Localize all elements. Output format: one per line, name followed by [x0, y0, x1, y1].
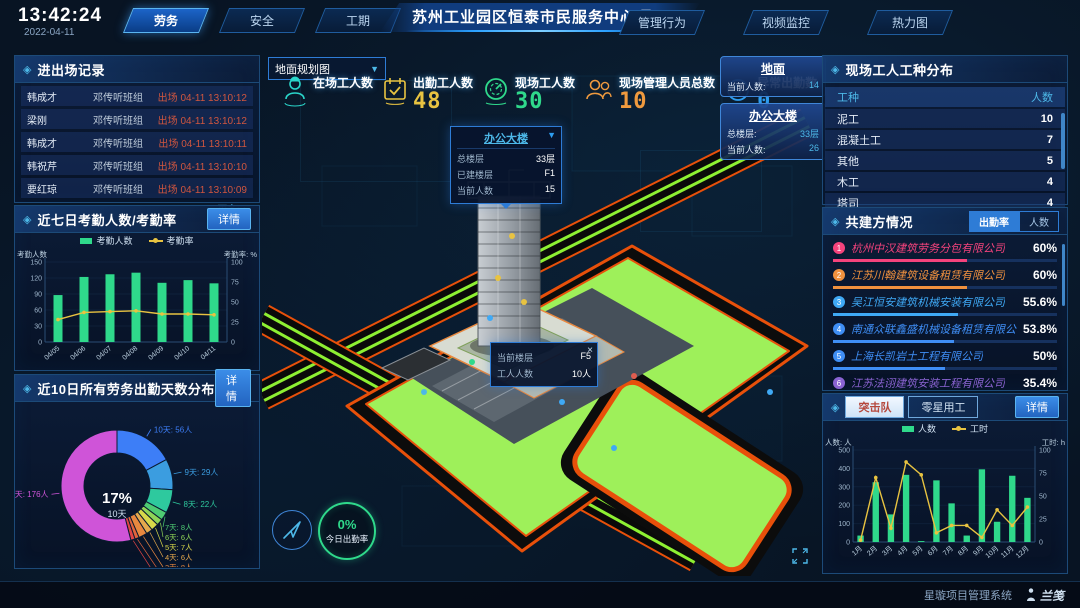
panel-header: ◈ 现场工人工种分布	[823, 56, 1067, 83]
svg-text:0: 0	[846, 540, 850, 547]
team-name: 邓传听班组	[93, 89, 158, 104]
entry-exit-list: 韩成才邓传听班组出场 04-11 13:10:12梁刚邓传听班组出场 04-11…	[15, 86, 259, 198]
fullscreen-icon[interactable]	[792, 548, 808, 564]
map-area: 地面规划图 ▼ 在场工人数出勤工人数48现场工人数30现场管理人员总数10异常出…	[262, 46, 818, 576]
view-tab-视频监控[interactable]: 视频监控	[743, 10, 829, 35]
event-time: 出场 04-11 13:10:10	[158, 158, 247, 173]
svg-text:50: 50	[1039, 494, 1047, 501]
panel-title: 近10日所有劳务出勤天数分布	[37, 379, 214, 398]
side-card-办公大楼[interactable]: 办公大楼总楼层:33层当前人数:26	[720, 103, 826, 160]
side-card-row: 总楼层:33层	[727, 127, 819, 140]
squad-tabs: 突击队零星用工	[845, 396, 978, 418]
legend-item-工时: 工时	[952, 422, 988, 435]
scrollbar[interactable]	[1061, 113, 1065, 169]
svg-text:04/09: 04/09	[147, 345, 165, 362]
partner-bar	[833, 313, 1057, 316]
svg-text:120: 120	[30, 276, 42, 283]
panel-header: ◈ 进出场记录	[15, 56, 259, 83]
event-time: 出场 04-11 13:10:12	[158, 112, 247, 127]
tab-label: 热力图	[892, 14, 928, 31]
worker-type-row: 其他5	[825, 151, 1065, 170]
time: 13:42:24	[18, 5, 102, 26]
legend-label: 工时	[970, 422, 988, 435]
panel-title: 进出场记录	[37, 60, 105, 79]
svg-text:7月: 7月	[941, 544, 954, 557]
team-name: 邓传听班组	[93, 112, 158, 127]
worker-type-row: 泥工10	[825, 109, 1065, 128]
rank-badge: 4	[833, 323, 845, 335]
svg-text:5天: 7人: 5天: 7人	[165, 543, 193, 552]
stat-value: 10	[619, 91, 715, 113]
chevron-down-icon[interactable]: ▼	[547, 130, 556, 140]
partner-item[interactable]: 3吴江恒安建筑机械安装有限公司55.6%	[833, 294, 1057, 316]
team-name: 邓传听班组	[93, 135, 158, 150]
svg-text:9天: 29人: 9天: 29人	[185, 468, 219, 477]
partner-value: 50%	[1033, 349, 1057, 363]
view-tab-热力图[interactable]: 热力图	[867, 10, 953, 35]
partner-item[interactable]: 1杭州中汉建筑劳务分包有限公司60%	[833, 240, 1057, 262]
worker-name: 梁刚	[27, 112, 93, 127]
panel-header: ◈ 近七日考勤人数/考勤率 详情	[15, 206, 259, 233]
module-tabs: 劳务安全工期	[128, 8, 396, 33]
partner-item[interactable]: 4南通众联鑫盛机械设备租赁有限公司53.8%	[833, 321, 1057, 343]
svg-text:75: 75	[231, 280, 239, 287]
panel-entry-exit: ◈ 进出场记录 韩成才邓传听班组出场 04-11 13:10:12梁刚邓传听班组…	[14, 55, 260, 203]
squad-tab-突击队[interactable]: 突击队	[845, 396, 904, 418]
type-name: 木工	[837, 174, 859, 190]
popup-row: 总楼层33层	[457, 152, 555, 165]
logo-person-icon	[1026, 588, 1036, 602]
tab-label: 管理行为	[638, 14, 686, 31]
building-popup-rows: 总楼层33层已建楼层F1当前人数15	[457, 152, 555, 197]
entry-exit-row: 韩成才邓传听班组出场 04-11 13:10:11	[21, 132, 253, 152]
chart-legend: 人数工时	[823, 421, 1067, 436]
partner-name: 江苏法诩建筑安装工程有限公司	[851, 375, 1005, 391]
partner-bar	[833, 286, 1057, 289]
popup-row: 工人人数10人	[497, 367, 591, 380]
worker-type-row: 混凝土工7	[825, 130, 1065, 149]
detail-button[interactable]: 详情	[1015, 396, 1059, 418]
svg-text:5月: 5月	[911, 544, 924, 557]
brand-logo: 兰笺	[1026, 587, 1064, 604]
svg-text:6月: 6月	[926, 544, 939, 557]
svg-text:0: 0	[231, 340, 235, 347]
date: 2022-04-11	[24, 27, 102, 38]
panel-partners: ◈ 共建方情况 出勤率人数 1杭州中汉建筑劳务分包有限公司60%2江苏川翰建筑设…	[822, 207, 1068, 391]
diamond-icon: ◈	[831, 63, 839, 76]
calendar-check-icon	[382, 76, 408, 111]
svg-text:11月: 11月	[999, 544, 1015, 559]
legend-label: 考勤人数	[96, 234, 132, 247]
entry-exit-row: 韩成才邓传听班组出场 04-11 13:10:12	[21, 86, 253, 106]
svg-text:200: 200	[838, 503, 850, 510]
panel-header: ◈ 近10日所有劳务出勤天数分布 详情	[15, 375, 259, 402]
rank-badge: 5	[833, 350, 845, 362]
panel-title: 现场工人工种分布	[845, 60, 953, 79]
rank-badge: 1	[833, 242, 845, 254]
rank-badge: 2	[833, 269, 845, 281]
popup-row: 当前人数15	[457, 184, 555, 197]
panel-header: ◈ 共建方情况 出勤率人数	[823, 208, 1067, 235]
stat-people: 现场管理人员总数10	[584, 74, 715, 113]
diamond-icon: ◈	[23, 63, 31, 76]
stat-gauge: 现场工人数30	[482, 74, 575, 113]
people-icon	[584, 77, 614, 110]
partner-value: 60%	[1033, 241, 1057, 255]
partner-tab-人数[interactable]: 人数	[1019, 211, 1059, 232]
attendance-gauge: 0% 今日出勤率	[318, 502, 376, 560]
svg-text:04/07: 04/07	[95, 345, 113, 362]
building-popup-title[interactable]: 办公大楼 ▼	[457, 130, 555, 149]
svg-text:2月: 2月	[866, 544, 879, 557]
side-card-title[interactable]: 办公大楼	[727, 107, 819, 124]
attendance-chart: 考勤人数考勤率: %0306090120150025507510004/0504…	[15, 248, 259, 368]
scrollbar[interactable]	[1062, 244, 1065, 306]
diamond-icon: ◈	[23, 213, 31, 226]
svg-text:0: 0	[1039, 540, 1043, 547]
building-popup: 办公大楼 ▼ 总楼层33层已建楼层F1当前人数15	[450, 126, 562, 204]
partner-value: 60%	[1033, 268, 1057, 282]
entry-exit-row: 韩祝芹邓传听班组出场 04-11 13:10:10	[21, 155, 253, 175]
type-count: 10	[1041, 113, 1053, 125]
svg-text:4月: 4月	[896, 544, 909, 557]
worker-name: 韩成才	[27, 135, 93, 150]
popup-row: 已建楼层F1	[457, 168, 555, 181]
svg-text:10月: 10月	[984, 544, 1000, 560]
tab-label: 视频监控	[762, 14, 810, 31]
svg-text:0天: 176人: 0天: 176人	[15, 490, 49, 499]
partner-value: 55.6%	[1023, 295, 1057, 309]
module-tab-安全[interactable]: 安全	[219, 8, 305, 33]
footer: 星璇项目管理系统 兰笺	[0, 581, 1080, 608]
panel-distribution10: ◈ 近10日所有劳务出勤天数分布 详情 10天: 56人9天: 29人8天: 2…	[14, 374, 260, 569]
svg-text:3天: 8人: 3天: 8人	[165, 563, 193, 567]
gauge-icon	[482, 76, 510, 111]
gauge-label: 今日出勤率	[326, 533, 369, 545]
partner-tab-出勤率[interactable]: 出勤率	[969, 211, 1019, 232]
partner-item[interactable]: 5上海长凯岩土工程有限公司50%	[833, 348, 1057, 370]
team-name: 邓传听班组	[93, 181, 158, 196]
type-count: 4	[1047, 176, 1053, 188]
svg-text:04/11: 04/11	[200, 345, 218, 361]
svg-text:04/08: 04/08	[121, 345, 139, 362]
diamond-icon: ◈	[831, 401, 839, 414]
partner-name: 上海长凯岩土工程有限公司	[851, 348, 983, 364]
event-time: 出场 04-11 13:10:11	[158, 135, 247, 150]
event-time: 出场 04-11 13:10:09	[158, 181, 247, 196]
panel-title: 近七日考勤人数/考勤率	[37, 210, 176, 229]
svg-text:10天: 56人: 10天: 56人	[154, 425, 192, 434]
stat-calendar-check: 出勤工人数48	[382, 74, 473, 113]
legend-item-人数: 人数	[902, 422, 936, 435]
partner-item[interactable]: 2江苏川翰建筑设备租赁有限公司60%	[833, 267, 1057, 289]
partner-name: 吴江恒安建筑机械安装有限公司	[851, 294, 1005, 310]
tab-label: 工期	[346, 12, 370, 29]
svg-text:75: 75	[1039, 471, 1047, 478]
chart-legend: 考勤人数考勤率	[15, 233, 259, 248]
panel-squad: ◈ 突击队零星用工 详情 人数工时 人数: 人工时: h010020030040…	[822, 393, 1068, 574]
partner-name: 南通众联鑫盛机械设备租赁有限公司	[851, 321, 1017, 337]
floor-popup-rows: 当前楼层F5工人人数10人	[497, 351, 591, 380]
type-count: 7	[1047, 134, 1053, 146]
table-header: 工种 人数	[825, 87, 1065, 107]
type-name: 其他	[837, 153, 859, 169]
event-time: 出场 04-11 13:10:12	[158, 89, 247, 104]
detail-button[interactable]: 详情	[207, 208, 251, 230]
diamond-icon: ◈	[831, 215, 839, 228]
entry-exit-row: 梁刚邓传听班组出场 04-11 13:10:12	[21, 109, 253, 129]
entry-exit-row: 要红琼邓传听班组出场 04-11 13:10:09	[21, 178, 253, 198]
svg-text:100: 100	[838, 521, 850, 528]
svg-text:04/05: 04/05	[43, 345, 61, 362]
partner-bar	[833, 259, 1057, 262]
worker-icon	[282, 75, 308, 112]
legend-item-考勤率: 考勤率	[149, 234, 194, 247]
svg-text:1月: 1月	[850, 544, 863, 557]
diamond-icon: ◈	[23, 382, 31, 395]
dashboard: 13:42:24 2022-04-11 劳务安全工期 苏州工业园区恒泰市民服务中…	[0, 0, 1080, 608]
svg-text:0: 0	[38, 340, 42, 347]
svg-text:04/10: 04/10	[173, 345, 191, 362]
legend-swatch	[80, 238, 92, 244]
svg-text:8月: 8月	[957, 544, 970, 557]
svg-text:25: 25	[1039, 517, 1047, 524]
close-icon[interactable]: ×	[587, 345, 593, 356]
svg-text:4天: 6人: 4天: 6人	[165, 553, 193, 562]
stat-value: 30	[515, 91, 575, 113]
compass-icon[interactable]	[272, 510, 312, 550]
svg-text:150: 150	[30, 260, 42, 267]
svg-text:300: 300	[838, 484, 850, 491]
svg-text:500: 500	[838, 448, 850, 455]
type-name: 泥工	[837, 111, 859, 127]
panel-worker-types: ◈ 现场工人工种分布 工种 人数 泥工10混凝土工7其他5木工4塔司4	[822, 55, 1068, 205]
partner-value: 35.4%	[1023, 376, 1057, 390]
module-tab-劳务[interactable]: 劳务	[123, 8, 209, 33]
system-name: 星璇项目管理系统	[924, 587, 1012, 603]
partner-bar	[833, 340, 1057, 343]
worker-types-table: 泥工10混凝土工7其他5木工4塔司4	[823, 109, 1067, 212]
view-tab-管理行为[interactable]: 管理行为	[619, 10, 705, 35]
popup-row: 当前楼层F5	[497, 351, 591, 364]
side-card-地面[interactable]: 地面当前人数:14	[720, 56, 826, 97]
rank-badge: 6	[833, 377, 845, 389]
svg-text:100: 100	[231, 260, 243, 267]
svg-text:考勤率: %: 考勤率: %	[224, 249, 258, 259]
partner-bar	[833, 367, 1057, 370]
svg-text:工时: h: 工时: h	[1042, 437, 1065, 447]
partner-name: 杭州中汉建筑劳务分包有限公司	[851, 240, 1005, 256]
side-card-title[interactable]: 地面	[727, 60, 819, 77]
svg-text:90: 90	[34, 292, 42, 299]
rank-badge: 3	[833, 296, 845, 308]
type-name: 混凝土工	[837, 132, 881, 148]
svg-text:6天: 6人: 6天: 6人	[165, 533, 193, 542]
legend-label: 考勤率	[167, 234, 194, 247]
squad-tab-零星用工[interactable]: 零星用工	[908, 396, 978, 418]
svg-text:60: 60	[34, 308, 42, 315]
panel-title: 共建方情况	[845, 212, 913, 231]
gauge-value: 0%	[338, 517, 357, 532]
svg-text:考勤人数: 考勤人数	[17, 249, 47, 259]
tab-label: 劳务	[154, 12, 178, 29]
svg-text:400: 400	[838, 466, 850, 473]
stat-worker: 在场工人数	[282, 74, 373, 113]
legend-swatch	[902, 426, 914, 432]
partner-value: 53.8%	[1023, 322, 1057, 336]
svg-text:9月: 9月	[972, 544, 985, 557]
side-card-row: 当前人数:14	[727, 80, 819, 93]
view-tabs: 管理行为视频监控热力图	[624, 10, 948, 35]
svg-text:8天: 22人: 8天: 22人	[183, 500, 217, 509]
svg-text:人数: 人: 人数: 人	[825, 437, 852, 447]
tab-label: 安全	[250, 12, 274, 29]
legend-label: 人数	[918, 422, 936, 435]
svg-text:50: 50	[231, 300, 239, 307]
panel-header: ◈ 突击队零星用工 详情	[823, 394, 1067, 421]
worker-name: 韩成才	[27, 89, 93, 104]
type-count: 5	[1047, 155, 1053, 167]
team-name: 邓传听班组	[93, 158, 158, 173]
partner-name: 江苏川翰建筑设备租赁有限公司	[851, 267, 1005, 283]
svg-text:12月: 12月	[1014, 544, 1030, 560]
legend-item-考勤人数: 考勤人数	[80, 234, 132, 247]
stat-label: 在场工人数	[313, 74, 373, 91]
svg-text:3月: 3月	[881, 544, 894, 557]
svg-text:30: 30	[34, 324, 42, 331]
floor-popup: × 当前楼层F5工人人数10人	[490, 342, 598, 387]
clock: 13:42:24 2022-04-11	[18, 6, 102, 38]
partner-item[interactable]: 6江苏法诩建筑安装工程有限公司35.4%	[833, 375, 1057, 391]
donut-chart: 10天: 56人9天: 29人8天: 22人7天: 8人6天: 6人5天: 7人…	[15, 402, 259, 567]
worker-type-row: 木工4	[825, 172, 1065, 191]
legend-swatch	[149, 238, 163, 243]
svg-text:25: 25	[231, 320, 239, 327]
partner-tabs: 出勤率人数	[969, 211, 1059, 232]
chevron-down-icon: ▼	[370, 64, 379, 74]
legend-swatch	[952, 426, 966, 431]
svg-text:04/06: 04/06	[69, 345, 87, 362]
worker-name: 韩祝芹	[27, 158, 93, 173]
squad-chart: 人数: 人工时: h010020030040050002550751001月2月…	[823, 436, 1067, 568]
side-card-row: 当前人数:26	[727, 143, 819, 156]
svg-text:7天: 8人: 7天: 8人	[165, 523, 193, 532]
worker-name: 要红琼	[27, 181, 93, 196]
panel-attendance7: ◈ 近七日考勤人数/考勤率 详情 考勤人数考勤率 考勤人数考勤率: %03060…	[14, 205, 260, 371]
svg-text:100: 100	[1039, 448, 1051, 455]
stat-value: 48	[413, 91, 473, 113]
stat-value	[313, 91, 373, 113]
partner-list: 1杭州中汉建筑劳务分包有限公司60%2江苏川翰建筑设备租赁有限公司60%3吴江恒…	[823, 240, 1067, 391]
